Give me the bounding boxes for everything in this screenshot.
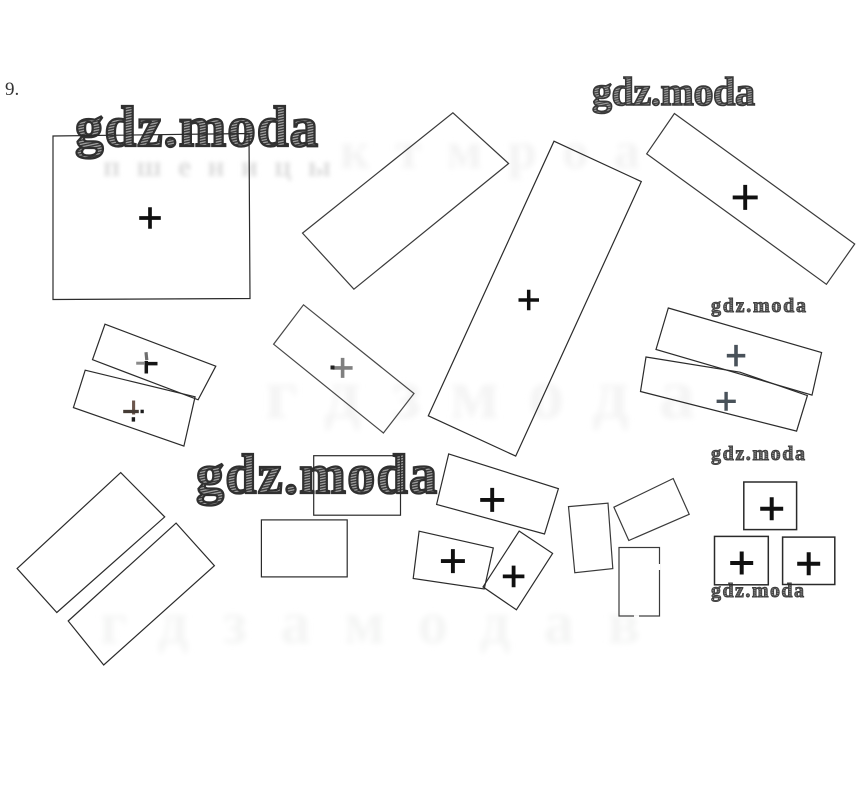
svg-text:гдзмода: гдзмода: [265, 354, 695, 434]
svg-text:гдзамодав: гдзамодав: [100, 590, 640, 656]
svg-text:gdz.moda: gdz.moda: [711, 295, 806, 317]
svg-text:gdz.moda: gdz.moda: [711, 443, 805, 465]
svg-text:ктмроа: ктмроа: [340, 123, 640, 180]
svg-text:9.: 9.: [5, 79, 19, 100]
svg-text:gdz.moda: gdz.moda: [75, 96, 318, 159]
svg-text:gdz.moda: gdz.moda: [711, 580, 804, 602]
svg-text:gdz.moda: gdz.moda: [592, 69, 755, 114]
